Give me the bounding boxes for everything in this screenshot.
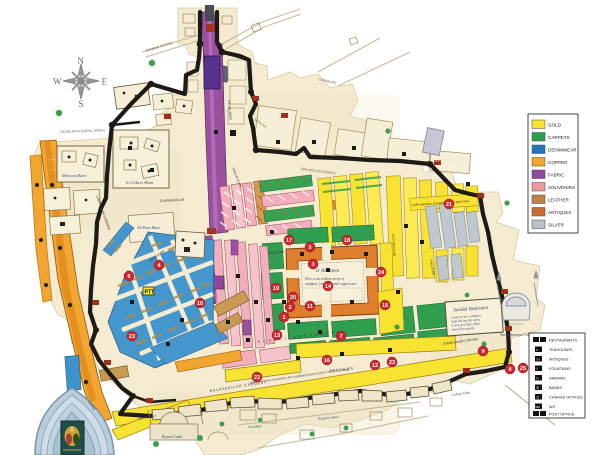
svg-text:Ic Cebeci Hani: Ic Cebeci Hani (125, 180, 154, 185)
svg-text:12: 12 (372, 363, 378, 369)
svg-text:WC: WC (549, 405, 556, 409)
svg-text:SILVER: SILVER (548, 223, 565, 228)
svg-text:FABRIC: FABRIC (548, 173, 565, 178)
svg-text:LEATHER: LEATHER (548, 198, 570, 203)
svg-text:E: E (102, 77, 108, 87)
svg-text:16: 16 (324, 358, 330, 364)
svg-text:25: 25 (520, 366, 526, 372)
svg-text:POST OFFICE: POST OFFICE (549, 413, 575, 417)
svg-text:f: f (537, 367, 538, 371)
svg-text:W: W (53, 77, 62, 87)
svg-text:N: N (78, 56, 85, 66)
svg-text:9: 9 (481, 349, 484, 355)
svg-text:h: h (537, 377, 539, 381)
svg-text:24: 24 (378, 270, 385, 276)
svg-text:HAMAMS: HAMAMS (549, 377, 566, 381)
svg-text:Cuhaci Hani: Cuhaci Hani (452, 390, 471, 397)
svg-text:UZUNCARSI EVENU SPRAG: UZUNCARSI EVENU SPRAG (60, 128, 106, 134)
svg-text:Beyazit Camii: Beyazit Camii (162, 435, 182, 439)
svg-text:22: 22 (254, 375, 260, 381)
svg-text:15: 15 (382, 303, 388, 309)
svg-text:7: 7 (339, 334, 342, 340)
svg-text:19: 19 (273, 286, 279, 292)
svg-text:CHANGE OFFICES: CHANGE OFFICES (549, 396, 583, 400)
svg-text:23: 23 (129, 334, 135, 340)
svg-text:Mercan Hani: Mercan Hani (61, 173, 87, 178)
svg-text:COPPER: COPPER (548, 160, 568, 165)
svg-text:Here is an endless array of: Here is an endless array of (304, 277, 345, 281)
svg-text:DENIMWEAR: DENIMWEAR (548, 148, 577, 153)
svg-text:Nuru Osmaniye Camii: Nuru Osmaniye Camii (499, 333, 532, 337)
svg-text:TEAHOUSES: TEAHOUSES (549, 348, 573, 352)
svg-text:6: 6 (127, 274, 130, 280)
svg-text:wc: wc (536, 405, 541, 409)
svg-text:GOLD: GOLD (548, 123, 562, 128)
svg-text:m: m (537, 358, 540, 362)
svg-text:1: 1 (282, 315, 285, 321)
svg-text:20: 20 (290, 295, 296, 301)
svg-text:8: 8 (508, 367, 511, 373)
svg-text:2: 2 (288, 305, 291, 311)
svg-text:FOUNTAINS: FOUNTAINS (549, 367, 571, 371)
svg-text:18: 18 (344, 238, 350, 244)
svg-text:PTT: PTT (145, 290, 154, 296)
svg-text:10: 10 (197, 301, 203, 307)
svg-text:11: 11 (307, 304, 313, 310)
svg-text:23: 23 (389, 360, 395, 366)
svg-text:BANKS: BANKS (549, 386, 562, 390)
svg-text:3: 3 (311, 262, 314, 268)
svg-text:C: C (537, 396, 540, 400)
svg-text:RESTAURANTS: RESTAURANTS (549, 339, 577, 343)
svg-text:MOSQUES: MOSQUES (549, 358, 569, 362)
svg-text:14: 14 (325, 284, 332, 290)
svg-text:Ali Pasa Hani: Ali Pasa Hani (136, 225, 160, 230)
svg-text:CARPETS: CARPETS (548, 135, 570, 140)
svg-text:5: 5 (308, 245, 311, 251)
svg-text:21: 21 (446, 202, 452, 208)
svg-text:SAMANI SOKAGI: SAMANI SOKAGI (145, 41, 173, 53)
svg-text:c: c (536, 348, 538, 352)
svg-text:SOUVENIRS: SOUVENIRS (548, 185, 575, 190)
svg-text:13: 13 (274, 333, 280, 339)
svg-text:ANTIQUES: ANTIQUES (548, 210, 571, 215)
svg-text:S: S (79, 99, 84, 109)
svg-text:17: 17 (286, 238, 292, 244)
